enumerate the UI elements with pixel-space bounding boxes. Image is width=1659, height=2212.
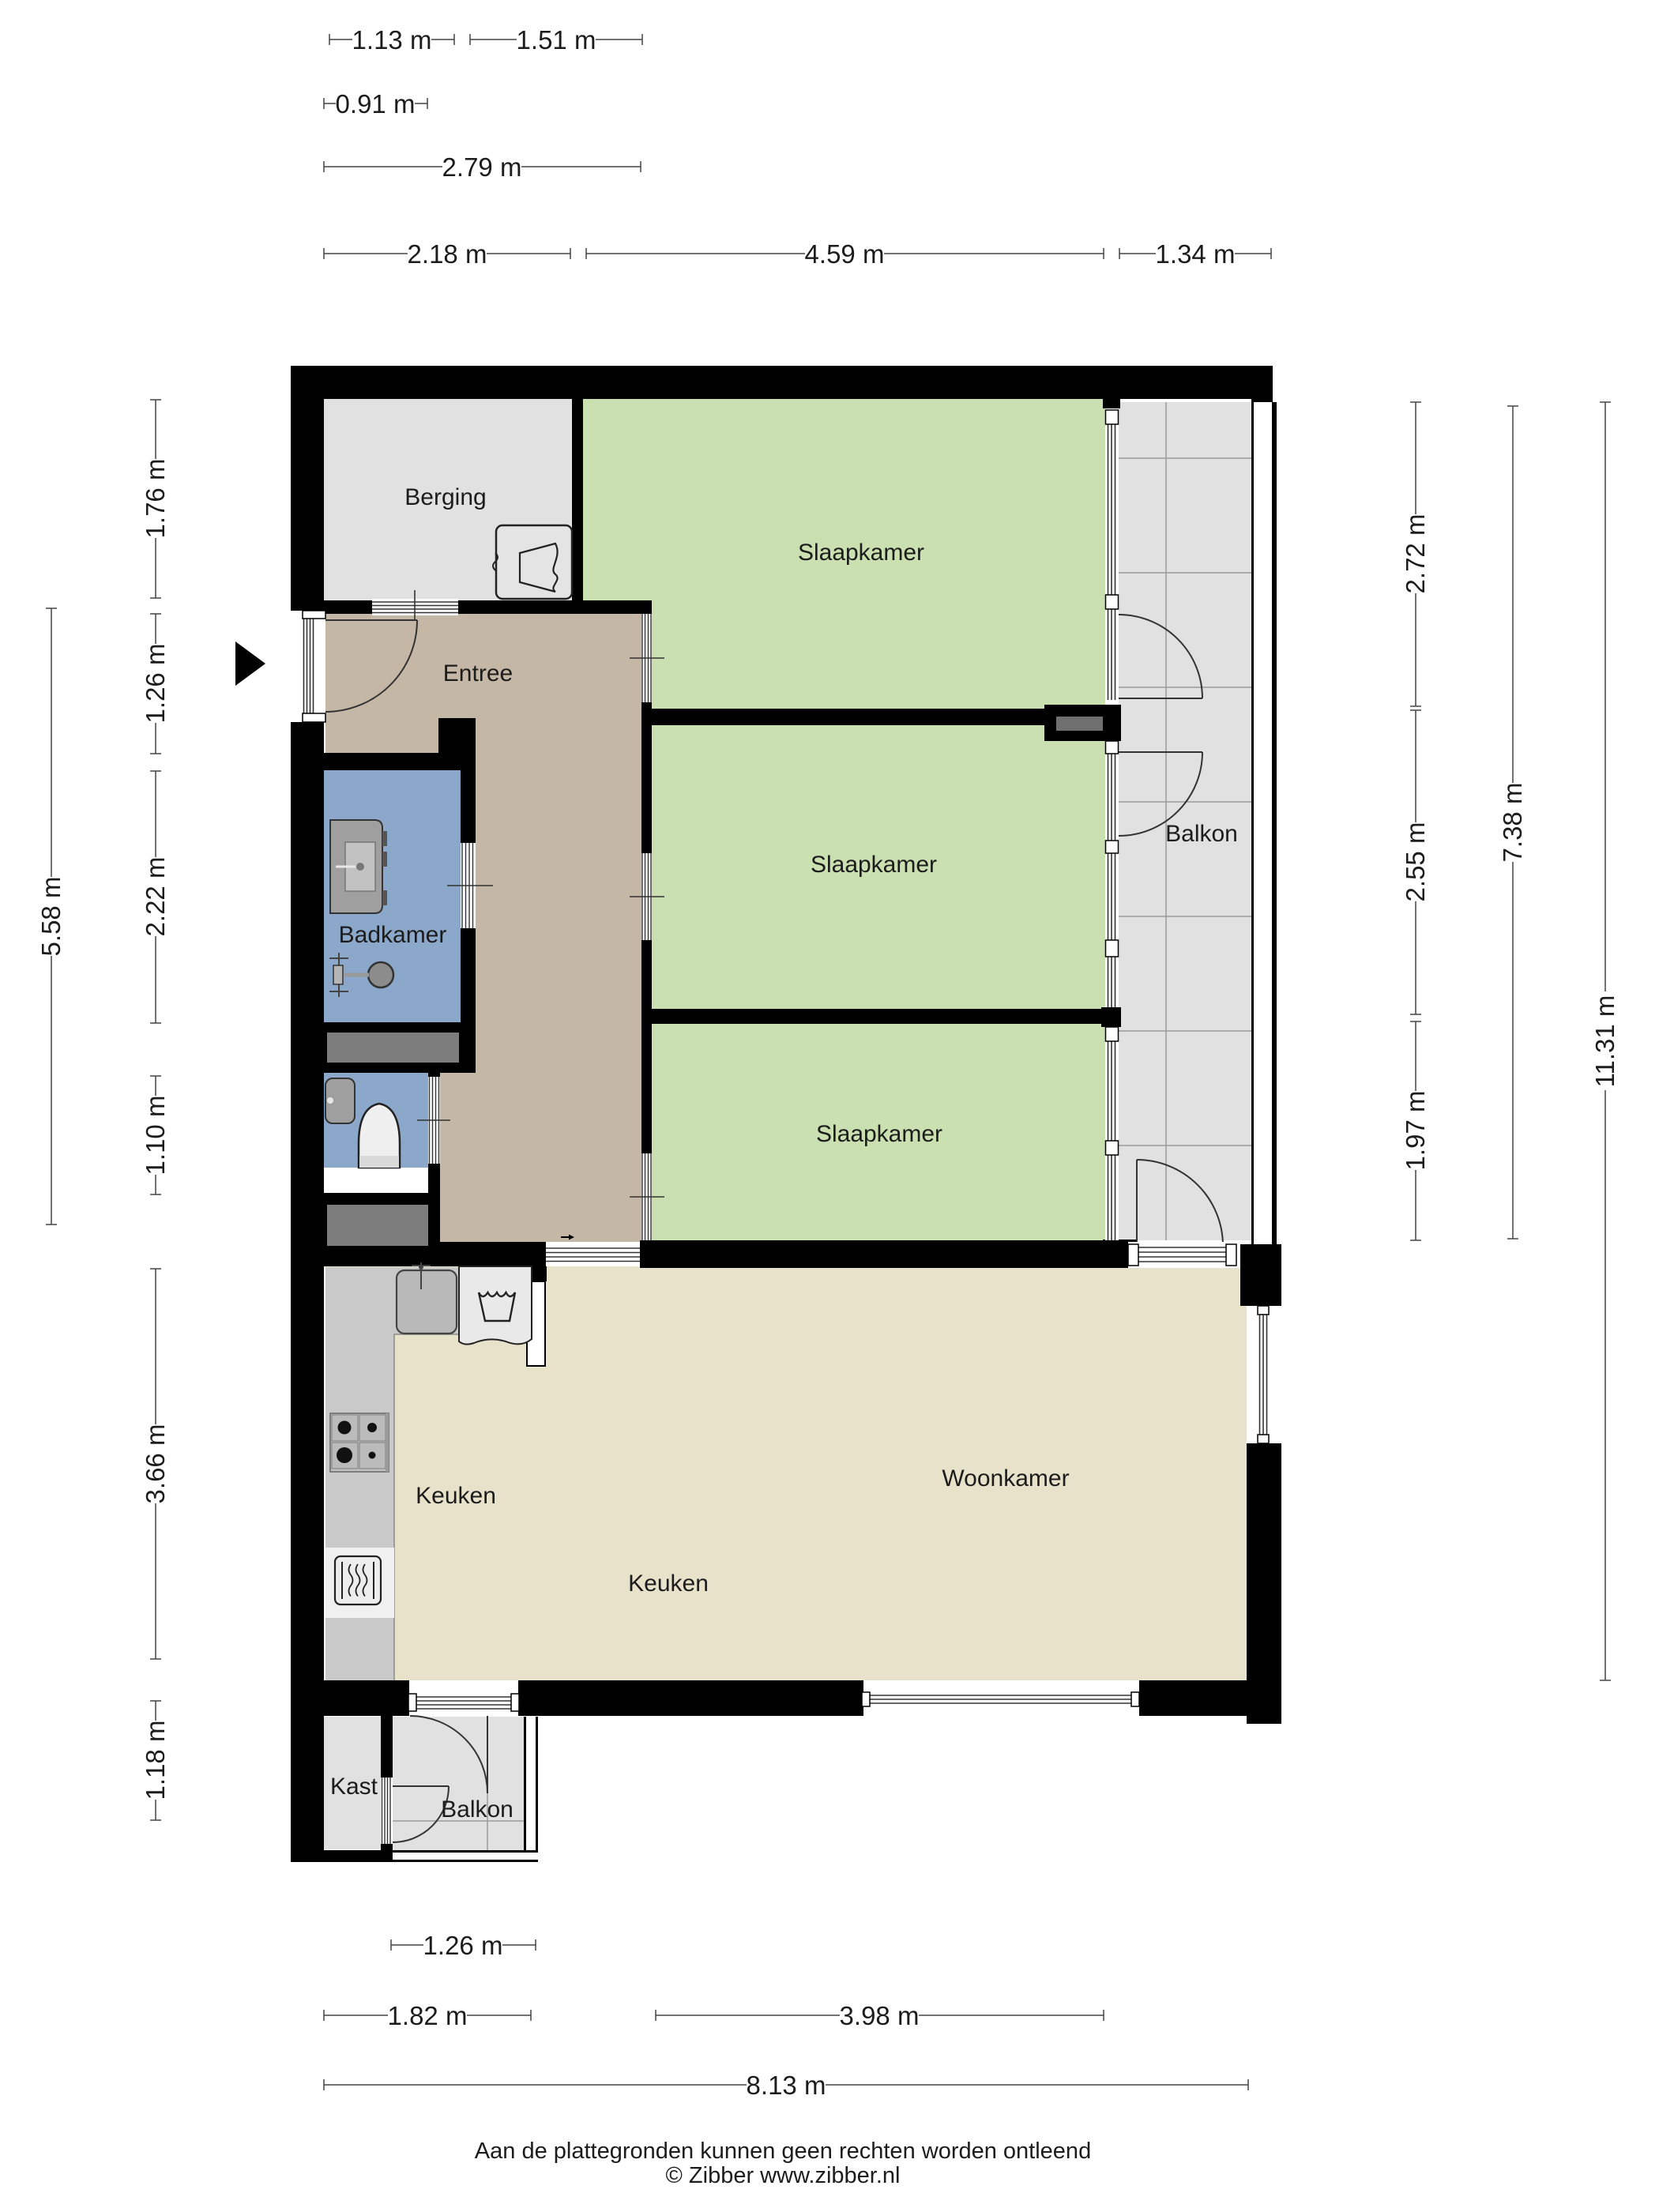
svg-text:Slaapkamer: Slaapkamer (798, 540, 924, 566)
svg-text:Woonkamer: Woonkamer (942, 1465, 1069, 1492)
svg-text:Keuken: Keuken (628, 1571, 709, 1597)
svg-text:Keuken: Keuken (416, 1483, 496, 1509)
svg-text:Balkon: Balkon (441, 1796, 513, 1823)
svg-text:2.55 m: 2.55 m (1401, 822, 1430, 902)
svg-text:1.51 m: 1.51 m (517, 25, 596, 55)
svg-text:8.13 m: 8.13 m (747, 2071, 826, 2100)
svg-text:4.59 m: 4.59 m (805, 239, 885, 269)
svg-text:1.13 m: 1.13 m (352, 25, 432, 55)
svg-text:3.66 m: 3.66 m (141, 1424, 170, 1504)
svg-text:7.38 m: 7.38 m (1498, 783, 1527, 863)
svg-text:Balkon: Balkon (1165, 821, 1238, 847)
svg-text:© Zibber www.zibber.nl: © Zibber www.zibber.nl (666, 2163, 901, 2188)
svg-text:Slaapkamer: Slaapkamer (811, 852, 937, 878)
svg-text:2.72 m: 2.72 m (1401, 514, 1430, 594)
svg-text:5.58 m: 5.58 m (36, 877, 66, 957)
svg-text:1.34 m: 1.34 m (1156, 239, 1236, 269)
svg-text:1.97 m: 1.97 m (1401, 1091, 1430, 1171)
svg-text:Kast: Kast (330, 1774, 378, 1800)
svg-text:1.10 m: 1.10 m (141, 1096, 170, 1176)
svg-text:Aan de plattegronden kunnen ge: Aan de plattegronden kunnen geen rechten… (475, 2139, 1091, 2164)
svg-text:3.98 m: 3.98 m (840, 2001, 920, 2030)
svg-text:11.31 m: 11.31 m (1590, 995, 1619, 1088)
svg-text:2.79 m: 2.79 m (442, 152, 522, 182)
svg-text:0.91 m: 0.91 m (336, 89, 416, 118)
svg-text:1.26 m: 1.26 m (141, 644, 170, 724)
svg-text:Slaapkamer: Slaapkamer (816, 1121, 942, 1147)
svg-text:1.76 m: 1.76 m (141, 459, 170, 539)
svg-text:1.18 m: 1.18 m (141, 1721, 170, 1800)
svg-text:1.26 m: 1.26 m (423, 1931, 503, 1960)
svg-text:1.82 m: 1.82 m (388, 2001, 468, 2030)
svg-text:2.18 m: 2.18 m (408, 239, 487, 269)
svg-text:Badkamer: Badkamer (339, 922, 447, 948)
svg-text:Entree: Entree (443, 660, 513, 687)
svg-text:2.22 m: 2.22 m (141, 857, 170, 937)
svg-text:Berging: Berging (404, 484, 486, 510)
